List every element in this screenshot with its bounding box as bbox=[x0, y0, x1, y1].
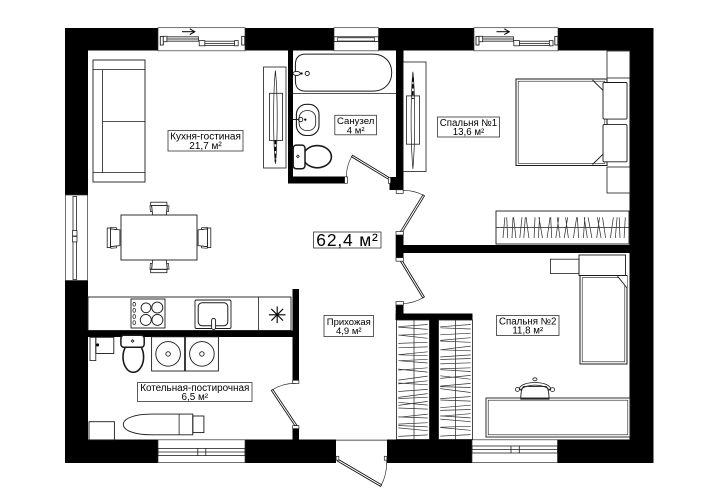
svg-text:21,7 м²: 21,7 м² bbox=[189, 141, 222, 152]
svg-text:4,9 м²: 4,9 м² bbox=[336, 326, 362, 337]
svg-text:13,6 м²: 13,6 м² bbox=[453, 127, 485, 138]
svg-text:6,5 м²: 6,5 м² bbox=[181, 392, 208, 403]
svg-text:4 м²: 4 м² bbox=[347, 125, 366, 136]
svg-text:11,8 м²: 11,8 м² bbox=[512, 326, 543, 337]
svg-text:62,4 м²: 62,4 м² bbox=[316, 230, 378, 250]
